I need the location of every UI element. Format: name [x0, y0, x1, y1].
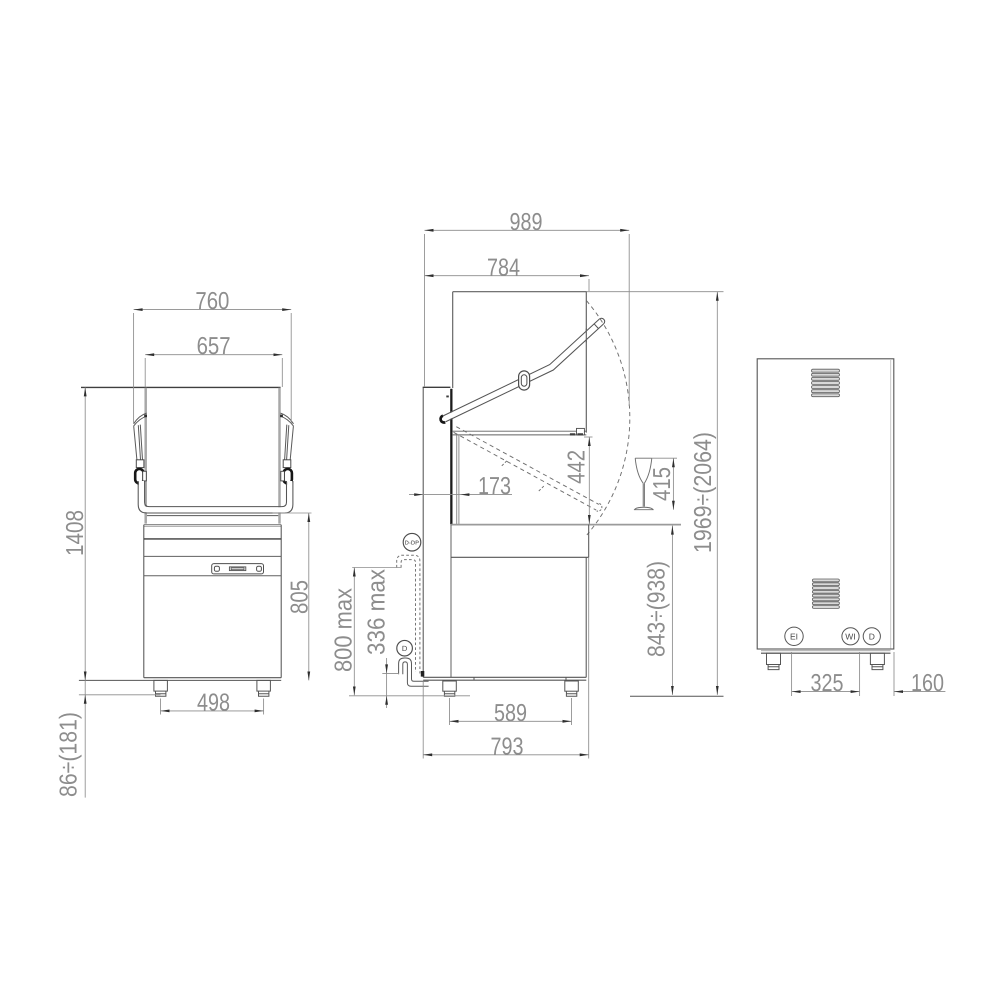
svg-text:498: 498: [197, 689, 230, 716]
svg-text:160: 160: [911, 670, 944, 697]
svg-text:D: D: [869, 631, 875, 641]
svg-text:415: 415: [649, 467, 676, 501]
svg-text:EI: EI: [790, 631, 798, 641]
svg-text:800 max: 800 max: [331, 588, 358, 672]
svg-text:86÷(181): 86÷(181): [56, 712, 83, 797]
svg-text:1408: 1408: [62, 510, 89, 556]
svg-text:325: 325: [811, 670, 844, 697]
svg-text:WI: WI: [845, 631, 855, 641]
svg-text:784: 784: [487, 254, 520, 281]
svg-text:173: 173: [478, 473, 511, 500]
svg-text:989: 989: [510, 209, 543, 236]
svg-text:805: 805: [287, 580, 314, 614]
svg-text:793: 793: [491, 733, 524, 760]
svg-text:D: D: [402, 644, 408, 653]
svg-text:657: 657: [197, 333, 231, 360]
svg-text:1969÷(2064): 1969÷(2064): [690, 432, 717, 553]
svg-text:442: 442: [564, 450, 591, 484]
svg-text:D-DP: D-DP: [405, 540, 420, 546]
svg-text:843÷(938): 843÷(938): [644, 561, 671, 657]
svg-text:589: 589: [494, 700, 527, 727]
svg-text:336 max: 336 max: [364, 569, 391, 655]
svg-text:760: 760: [195, 288, 229, 315]
